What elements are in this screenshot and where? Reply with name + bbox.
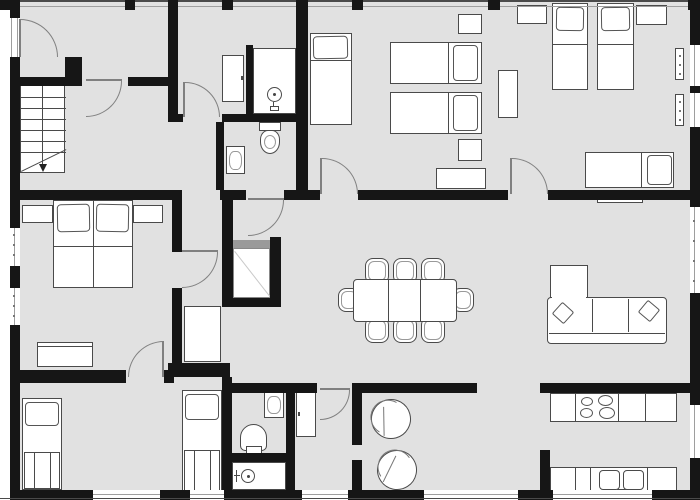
wall-segment — [548, 190, 690, 200]
footbox-line — [210, 450, 211, 491]
wall-segment — [690, 86, 700, 93]
wall-segment — [246, 45, 253, 122]
pillow — [647, 155, 672, 185]
wall-segment — [540, 383, 690, 393]
nightstand — [517, 5, 547, 24]
wall-segment — [270, 237, 281, 307]
staircase — [20, 85, 65, 173]
wall-segment — [125, 0, 135, 10]
elevator-door — [233, 240, 270, 248]
pillow — [25, 402, 59, 426]
counter-divider — [645, 394, 646, 421]
stair-tread — [21, 108, 66, 109]
wall-segment — [352, 460, 362, 490]
door-leaf — [183, 82, 185, 117]
wall-segment — [352, 0, 363, 10]
window-tick — [13, 315, 15, 317]
wall-segment — [222, 298, 281, 307]
table-leaf-line — [420, 280, 421, 321]
wall-segment — [65, 57, 82, 86]
door-leaf — [320, 388, 350, 390]
wall-segment — [296, 0, 308, 200]
wall-segment — [362, 383, 477, 393]
floor-plan — [0, 0, 700, 500]
desk — [436, 168, 486, 189]
door-leaf — [19, 19, 21, 57]
window-glass — [424, 494, 518, 495]
kitchen-counter-top — [550, 393, 677, 422]
stove-burner — [598, 395, 613, 406]
blanket-line — [311, 60, 351, 61]
wardrobe — [498, 70, 518, 118]
stair-arrow-line — [42, 121, 43, 166]
window-tick — [693, 260, 695, 262]
door-leaf — [162, 341, 164, 377]
pillow — [601, 7, 630, 32]
door-leaf — [320, 158, 322, 194]
stair-tread — [21, 141, 66, 142]
pillow — [453, 95, 478, 131]
stair-down-arrow-icon — [39, 164, 47, 172]
pillow — [96, 204, 129, 233]
stove-burner — [581, 397, 593, 406]
blanket-line — [641, 153, 642, 187]
wall-segment — [168, 363, 230, 377]
wall-segment — [540, 450, 550, 490]
shower-faucet — [270, 106, 279, 111]
washbasin-bowl — [267, 396, 281, 414]
blanket-line — [53, 246, 133, 247]
cabinet-handle — [241, 76, 243, 80]
radiator — [675, 48, 684, 80]
stair-tread — [21, 130, 66, 131]
window — [10, 228, 20, 266]
wall-segment — [220, 190, 246, 200]
sink-basin — [599, 470, 620, 490]
wardrobe-handle — [298, 412, 300, 416]
shower-faucet — [236, 470, 237, 482]
elevator-diagonal — [234, 251, 270, 297]
window-glass — [553, 494, 652, 495]
wall-segment — [232, 453, 286, 462]
shower-faucet — [234, 475, 240, 476]
footbox-line — [194, 450, 195, 491]
stair-tread — [21, 119, 66, 120]
shower-head-icon — [241, 469, 255, 483]
window-glass — [190, 494, 224, 495]
wall-segment — [164, 370, 174, 383]
sink-basin — [623, 470, 644, 490]
washbasin-bowl — [229, 151, 242, 170]
window — [18, 6, 125, 7]
table-leaf-line — [388, 280, 389, 321]
nightstand — [458, 139, 482, 161]
counter-divider — [618, 394, 619, 421]
window-tick — [13, 254, 15, 256]
window — [690, 405, 700, 458]
window-glass — [302, 494, 348, 495]
bed-divider-line — [93, 200, 94, 288]
wall-segment — [0, 0, 700, 2]
window — [690, 93, 700, 127]
footbox-line — [34, 452, 35, 489]
bed-footbox — [24, 452, 60, 489]
toilet-bowl-inner — [264, 135, 276, 149]
shower-head-icon — [267, 87, 282, 102]
pillow — [57, 204, 90, 233]
window-tick — [693, 280, 695, 282]
window-glass — [93, 494, 160, 495]
wall-segment — [222, 237, 233, 307]
window — [690, 45, 700, 86]
wall-segment — [222, 200, 233, 237]
stove-burner — [580, 408, 593, 418]
wall-segment — [222, 0, 233, 10]
wall-segment — [216, 122, 224, 190]
sofa-cushion-line — [592, 299, 593, 332]
pillow — [185, 394, 219, 420]
pillow — [313, 36, 348, 60]
door-leaf — [182, 250, 218, 252]
blanket-line — [448, 43, 449, 83]
blanket-line — [598, 44, 633, 45]
wall-segment — [10, 266, 20, 288]
wall-segment — [10, 325, 20, 500]
wall-segment — [690, 293, 700, 405]
window-glass — [694, 93, 695, 127]
door-leaf — [86, 79, 122, 81]
wall-segment — [168, 0, 178, 122]
wall-segment — [284, 190, 320, 200]
door-frame — [17, 18, 18, 57]
door-leaf — [510, 158, 512, 194]
wall-segment — [230, 383, 317, 393]
wall-segment — [128, 77, 168, 86]
wall-segment — [222, 377, 232, 490]
shower-stall-top — [253, 48, 296, 114]
window-tick — [13, 305, 15, 307]
wall-segment — [352, 383, 362, 445]
wall-segment — [172, 200, 182, 252]
pillow — [556, 7, 584, 31]
wall-segment — [286, 383, 295, 490]
window-tick — [13, 244, 15, 246]
window — [10, 288, 20, 325]
nightstand — [636, 5, 667, 25]
bed-footbox — [184, 450, 220, 491]
wall-segment — [488, 0, 500, 10]
window-glass — [694, 45, 695, 86]
window — [690, 207, 700, 293]
wall-segment — [168, 114, 183, 122]
wall-segment — [690, 127, 700, 207]
window-glass — [694, 405, 695, 458]
elevator-cab — [233, 248, 270, 298]
window — [363, 6, 488, 7]
sofa-join — [552, 293, 586, 302]
dresser-line — [38, 346, 92, 347]
radiator — [675, 94, 684, 126]
wardrobe — [184, 306, 221, 362]
nightstand — [22, 205, 53, 223]
window-tick — [13, 295, 15, 297]
nightstand — [133, 205, 163, 223]
wall-segment — [358, 190, 508, 200]
sofa-seat-line — [549, 333, 665, 334]
window — [135, 6, 222, 7]
window — [233, 6, 352, 7]
door-frame — [11, 18, 12, 57]
blanket-line — [553, 44, 587, 45]
window-tick — [13, 234, 15, 236]
stove-burner — [599, 407, 615, 419]
pillow — [453, 45, 478, 81]
window-tick — [693, 220, 695, 222]
window — [500, 6, 688, 7]
window-tick — [693, 240, 695, 242]
dining-table — [353, 279, 457, 322]
footbox-line — [50, 452, 51, 489]
wall-segment — [172, 288, 182, 370]
wall-segment — [0, 498, 700, 500]
wall-segment — [12, 190, 182, 200]
stair-tread — [21, 97, 66, 98]
door-leaf — [248, 198, 284, 200]
nightstand — [458, 14, 482, 34]
wall-segment — [690, 0, 700, 45]
wall-segment — [10, 0, 20, 18]
counter-divider — [575, 394, 576, 421]
sofa-cushion-line — [628, 299, 629, 332]
wall-segment — [12, 370, 126, 383]
blanket-line — [448, 93, 449, 133]
